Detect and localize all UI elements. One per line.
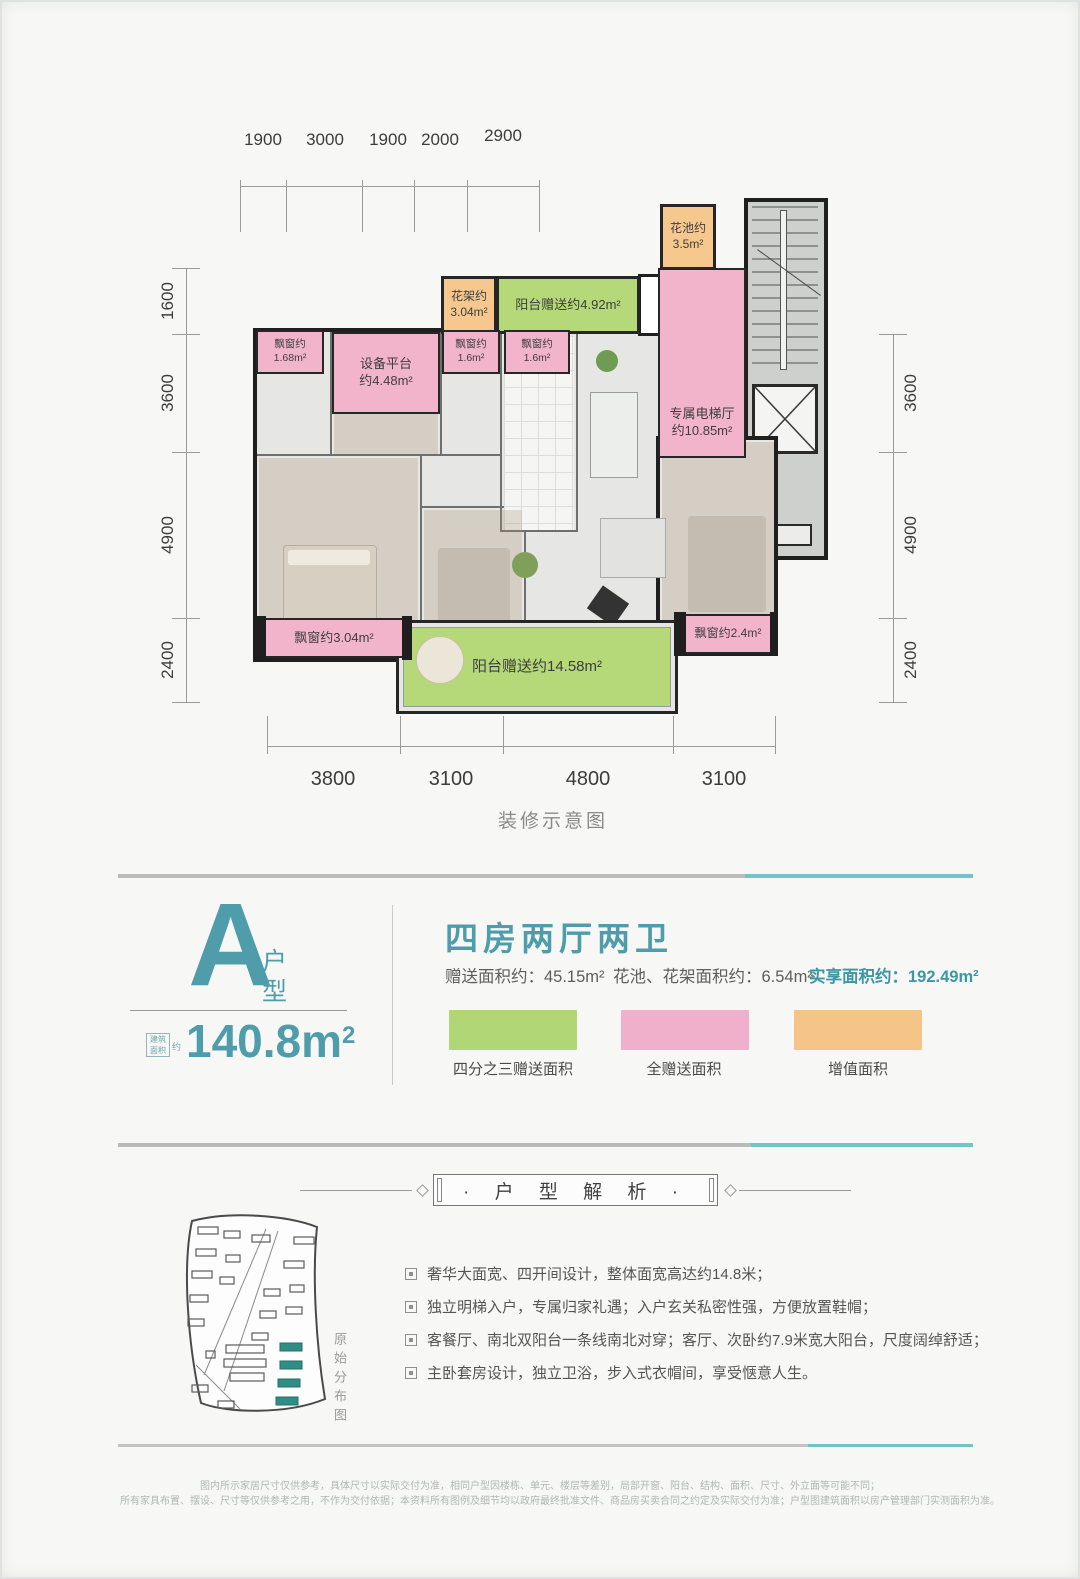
dim-tick [879,702,907,703]
dim-left-3: 4900 [158,516,178,554]
zone-label: 飘窗约 [274,338,306,352]
dim-right-1: 3600 [901,374,921,412]
zone-label: 飘窗约 [455,338,487,352]
built-area-value: 140.8m2 [186,1018,355,1064]
area-badge-suffix: 约 [172,1040,181,1053]
dim-line-bottom [267,746,775,747]
disclaimer-line-2: 所有家具布置、摆设、尺寸等仅供参考之用，不作为交付依据；本资料所有图例及细节均以… [120,1492,960,1507]
wall-accent [402,616,412,660]
zone-label: 花池约 [670,221,706,237]
plant [596,350,618,372]
zone-bay-window-4: 飘窗约 3.04m² [264,618,404,658]
bullet-text: 独立明梯入户，专属归家礼遇；入户玄关私密性强，方便放置鞋帽； [427,1299,877,1316]
dim-tick [286,180,287,232]
dim-bottom-2: 3100 [429,768,474,791]
bed-2 [438,548,510,626]
dim-line-top [240,186,540,187]
zone-area: 1.68m² [274,352,307,366]
balcony-round-table [416,636,464,684]
header-deco-line-left [300,1190,412,1191]
analysis-bullet-4: 主卧套房设计，独立卫浴，步入式衣帽间，享受惬意人生。 [405,1362,817,1383]
header-end-bar [437,1178,442,1202]
dim-tick [172,334,200,335]
dim-top-1: 1900 [244,130,282,150]
siteplan-map [168,1205,343,1425]
equipment-room-floor [334,414,438,454]
dim-tick [414,180,415,232]
section-divider [118,1143,751,1147]
dim-top-4: 2000 [421,130,459,150]
analysis-header-text: · 户 型 解 析 · [463,1177,688,1204]
dim-tick [172,618,200,619]
legend-label-pink: 全赠送面积 [646,1058,721,1079]
section-divider [118,1444,808,1447]
section-divider [118,874,745,878]
stat-flower-area: 花池、花架面积约：6.54m² [613,963,813,987]
zone-equipment-platform: 设备平台 约4.48m² [332,332,440,414]
bullet-text: 奢华大面宽、四开间设计，整体面宽高达约14.8米； [427,1266,771,1283]
analysis-bullet-3: 客餐厅、南北双阳台一条线南北对穿；客厅、次卧约7.9米宽大阳台，尺度阔绰舒适； [405,1329,988,1350]
dim-tick [503,716,504,754]
legend-label-green: 四分之三赠送面积 [453,1058,573,1079]
zone-balcony-top: 阳台赠送约 4.92m² [496,276,640,334]
zone-bay-window-1: 飘窗约 1.68m² [256,330,324,374]
wall [576,332,578,532]
header-deco-diamond-left [416,1184,429,1197]
dim-top-5: 2900 [484,126,522,146]
dim-tick [673,716,674,754]
dim-tick [362,180,363,232]
dim-tick [879,618,907,619]
zone-label: 阳台赠送约 [515,297,580,314]
zone-bay-window-3: 飘窗约 1.6m² [504,330,570,374]
header-deco-line-right [739,1190,851,1191]
dim-tick [539,180,540,232]
section-divider-accent [751,1143,973,1147]
wall-accent [674,612,686,656]
bed-3 [688,516,766,612]
dim-tick [400,716,401,754]
built-area-sup: 2 [342,1022,355,1049]
header-end-bar [709,1178,714,1202]
dim-bottom-1: 3800 [311,768,356,791]
dim-top-3: 1900 [369,130,407,150]
legend-label-orange: 增值面积 [828,1058,888,1079]
disclaimer-line-1: 图内所示家居尺寸仅供参考，具体尺寸以实际交付为准，相同户型因楼栋、单元、楼层等差… [120,1477,960,1492]
dim-tick [467,180,468,232]
dim-left-2: 3600 [158,374,178,412]
siteplan-svg [168,1205,343,1425]
zone-area: 3.04m² [450,305,487,321]
zone-area: 4.92m² [580,297,620,314]
dim-left-4: 2400 [158,641,178,679]
siteplan-caption: 原始分布图 [330,1332,349,1427]
stair-rail [780,210,787,370]
dim-tick [172,268,200,269]
dim-tick [172,702,200,703]
dim-line-right [893,334,894,702]
zone-label: 飘窗约 [294,630,333,647]
sofa [600,518,666,578]
layout-title: 四房两厅两卫 [445,912,673,960]
dim-tick [267,716,268,754]
zone-label: 飘窗约 [521,338,553,352]
section-divider-accent [808,1444,973,1447]
dim-top-2: 3000 [306,130,344,150]
zone-area: 2.4m² [731,626,762,642]
unit-type-char-2: 型 [262,972,287,1008]
dim-tick [879,452,907,453]
area-badge-line1: 建筑 [147,1034,169,1045]
zone-area: 约10.85m² [672,423,733,440]
wall [257,454,502,456]
zone-area: 约4.48m² [359,373,412,390]
info-vertical-divider [392,905,393,1085]
unit-divider-line [130,1010,347,1011]
section-divider-accent [745,874,973,878]
stat-actual-area: 实享面积约：192.49m² [809,963,979,987]
bullet-square-icon [405,1367,417,1379]
analysis-header-box: · 户 型 解 析 · [433,1174,718,1206]
legend-swatch-pink [621,1010,749,1050]
bed-pillow [288,550,370,565]
analysis-bullet-1: 奢华大面宽、四开间设计，整体面宽高达约14.8米； [405,1263,771,1284]
dim-tick [172,452,200,453]
floorplan-diagram: 1900 3000 1900 2000 2900 1600 3600 4900 … [0,0,1080,860]
dim-tick [775,716,776,754]
analysis-bullet-2: 独立明梯入户，专属归家礼遇；入户玄关私密性强，方便放置鞋帽； [405,1296,877,1317]
zone-label: 设备平台 [360,356,412,373]
zone-area: 14.58m² [547,657,602,677]
zone-bay-window-2: 飘窗约 1.6m² [442,330,500,374]
wall [500,332,502,532]
bullet-text: 主卧套房设计，独立卫浴，步入式衣帽间，享受惬意人生。 [427,1365,817,1382]
bullet-square-icon [405,1268,417,1280]
zone-label: 花架约 [451,289,487,305]
zone-label: 阳台赠送约 [472,657,547,677]
zone-bay-window-5: 飘窗约 2.4m² [684,614,772,654]
zone-flower-pool: 花池约 3.5m² [660,204,716,270]
bullet-square-icon [405,1301,417,1313]
dim-right-3: 2400 [901,641,921,679]
dim-right-2: 4900 [901,516,921,554]
stat-gift-area: 赠送面积约：45.15m² [445,963,605,987]
bullet-text: 客餐厅、南北双阳台一条线南北对穿；客厅、次卧约7.9米宽大阳台，尺度阔绰舒适； [427,1332,988,1349]
dim-left-1: 1600 [158,282,178,320]
wall-accent [770,612,778,656]
plan-caption: 装修示意图 [498,806,608,833]
wall-accent [254,616,266,660]
zone-area: 1.6m² [524,352,551,366]
zone-label: 飘窗约 [695,626,731,642]
plant [512,552,538,578]
zone-area: 3.5m² [673,237,704,253]
built-area-number: 140.8m [186,1015,342,1067]
area-badge: 建筑 面积 [146,1033,170,1057]
legend-swatch-orange [794,1010,922,1050]
zone-area: 3.04m² [333,630,373,647]
header-deco-diamond-right [724,1184,737,1197]
dim-bottom-4: 3100 [702,768,747,791]
dim-tick [879,334,907,335]
dining-table [590,392,638,478]
legend-swatch-green [449,1010,577,1050]
zone-label: 专属电梯厅 [669,406,734,423]
zone-elevator-hall: 专属电梯厅 约10.85m² [658,268,746,458]
dim-tick [240,180,241,232]
bullet-square-icon [405,1334,417,1346]
zone-flower-rack: 花架约 3.04m² [441,276,497,334]
area-badge-line2: 面积 [147,1045,169,1056]
floorplan-poster: 1900 3000 1900 2000 2900 1600 3600 4900 … [0,0,1080,1579]
unit-letter: A [188,886,273,1004]
zone-area: 1.6m² [458,352,485,366]
dim-bottom-3: 4800 [566,768,611,791]
